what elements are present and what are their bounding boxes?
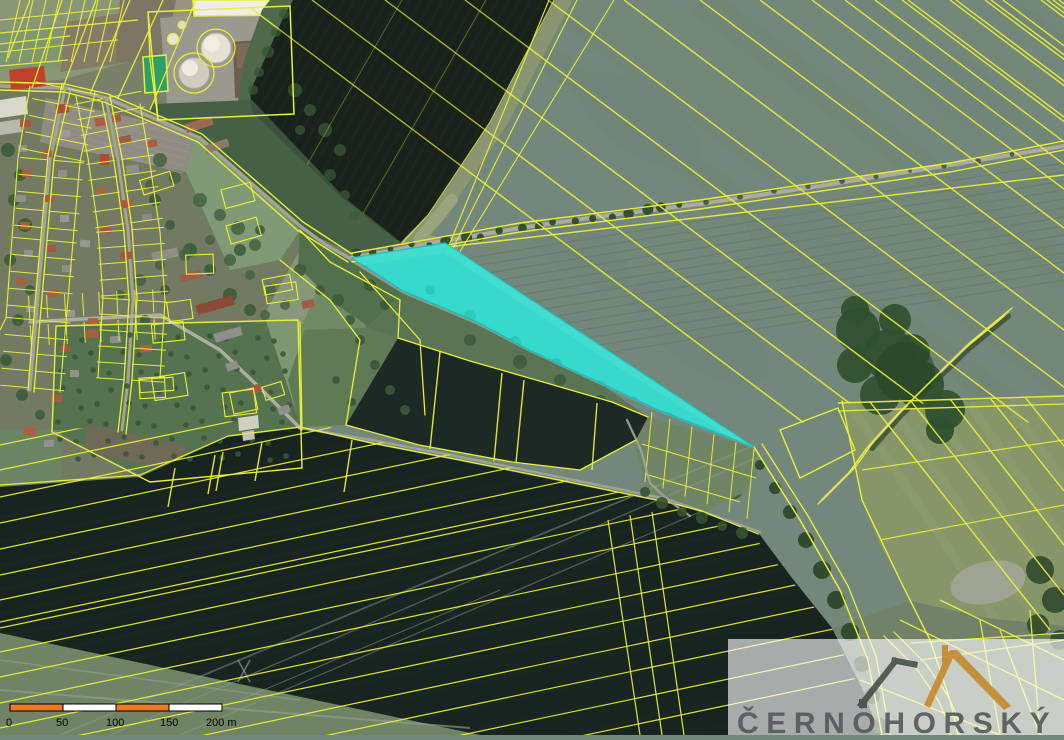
svg-text:ČERNOHORSKÝ: ČERNOHORSKÝ [737, 706, 1057, 735]
svg-text:50: 50 [56, 717, 68, 729]
svg-text:0: 0 [6, 717, 12, 729]
svg-text:200 m: 200 m [206, 717, 237, 729]
svg-text:150: 150 [160, 717, 178, 729]
svg-text:100: 100 [106, 717, 124, 729]
